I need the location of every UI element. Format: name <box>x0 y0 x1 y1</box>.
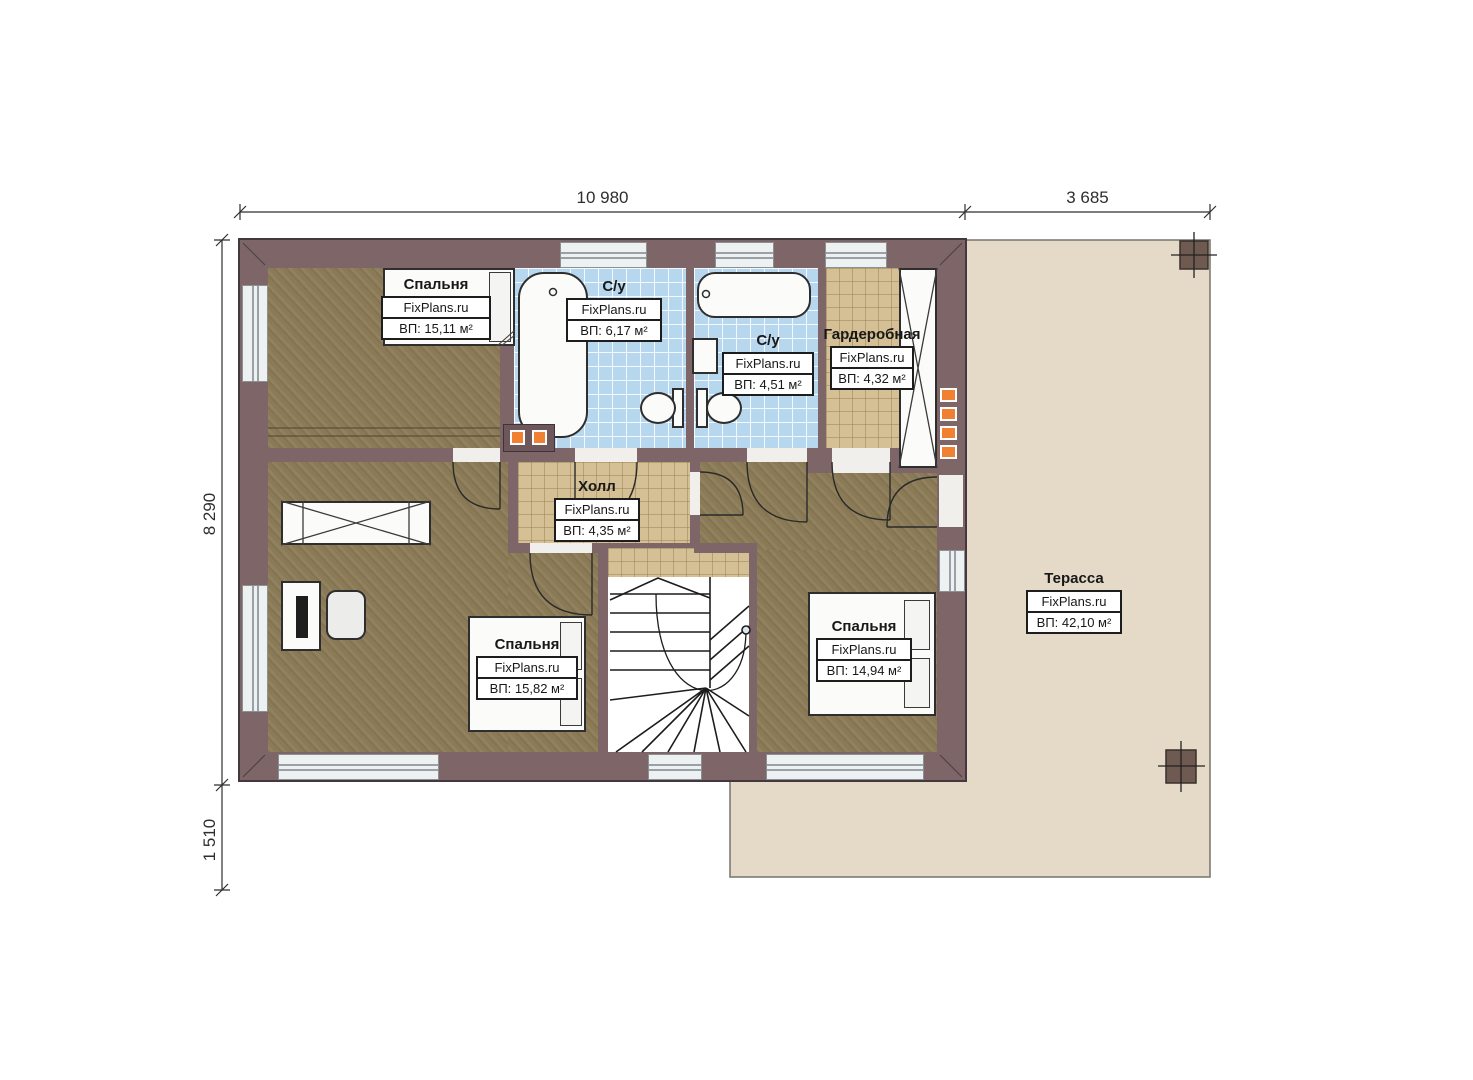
room-area: ВП: 15,82 м² <box>478 677 576 698</box>
dimension-terrace-side: 1 510 <box>200 800 220 880</box>
dimension-terrace-width: 3 685 <box>965 188 1210 208</box>
window <box>242 585 268 712</box>
stairwell <box>608 577 749 752</box>
door-opening <box>832 448 890 473</box>
room-name: Холл <box>578 478 616 495</box>
closet <box>281 501 431 545</box>
window <box>242 285 268 382</box>
chair <box>326 590 366 640</box>
brand-label: FixPlans.ru <box>832 348 912 367</box>
room-name: Спальня <box>495 636 560 653</box>
brand-label: FixPlans.ru <box>383 298 489 317</box>
wall <box>508 462 518 553</box>
window <box>766 754 924 780</box>
room-name: Спальня <box>832 618 897 635</box>
window <box>278 754 439 780</box>
corridor-floor <box>700 462 937 550</box>
room-area: ВП: 4,32 м² <box>832 367 912 388</box>
door-opening <box>690 472 700 515</box>
wall <box>694 543 749 553</box>
door-opening <box>575 448 637 462</box>
room-name: С/у <box>602 278 625 295</box>
room-label-bedroom-bottom-right: Спальня FixPlans.ru ВП: 14,94 м² <box>818 618 910 682</box>
floor-plan: 10 980 3 685 8 290 1 510 Спальня FixPlan… <box>0 0 1473 1080</box>
window <box>648 754 702 780</box>
terrace-post <box>1180 241 1208 269</box>
brand-label: FixPlans.ru <box>478 658 576 677</box>
terrace-door-opening <box>939 475 963 527</box>
wall <box>508 543 530 553</box>
brand-label: FixPlans.ru <box>818 640 910 659</box>
wall <box>690 462 700 472</box>
room-name: Терасса <box>1044 570 1103 587</box>
orange-marker <box>940 388 957 402</box>
room-area: ВП: 42,10 м² <box>1028 611 1120 632</box>
sink <box>692 338 718 374</box>
room-name: С/у <box>756 332 779 349</box>
pillow <box>489 272 511 342</box>
orange-marker <box>510 430 525 445</box>
bathtub <box>697 272 811 318</box>
room-area: ВП: 14,94 м² <box>818 659 910 680</box>
terrace-post <box>1166 750 1196 783</box>
wall <box>749 543 757 752</box>
room-name: Гардеробная <box>823 326 920 343</box>
room-area: ВП: 15,11 м² <box>383 317 489 338</box>
brand-label: FixPlans.ru <box>724 354 812 373</box>
room-area: ВП: 6,17 м² <box>568 319 660 340</box>
door-opening <box>747 448 807 462</box>
post-cross-marks <box>1158 232 1217 792</box>
wall <box>637 448 747 462</box>
window <box>939 550 965 592</box>
window <box>825 242 887 268</box>
room-label-bathroom-1: С/у FixPlans.ru ВП: 6,17 м² <box>568 278 660 342</box>
room-name: Спальня <box>404 276 469 293</box>
orange-marker <box>940 445 957 459</box>
wall <box>592 543 608 553</box>
orange-marker <box>532 430 547 445</box>
room-area: ВП: 4,35 м² <box>556 519 638 540</box>
room-label-hall: Холл FixPlans.ru ВП: 4,35 м² <box>556 478 638 542</box>
room-area: ВП: 4,51 м² <box>724 373 812 394</box>
dimension-side-height: 8 290 <box>200 474 220 554</box>
room-label-wardrobe: Гардеробная FixPlans.ru ВП: 4,32 м² <box>832 326 912 390</box>
window <box>560 242 647 268</box>
room-label-bedroom-top-left: Спальня FixPlans.ru ВП: 15,11 м² <box>383 276 489 340</box>
toilet <box>706 392 742 424</box>
brand-label: FixPlans.ru <box>556 500 638 519</box>
window <box>715 242 774 268</box>
brand-label: FixPlans.ru <box>1028 592 1120 611</box>
wall <box>268 448 453 462</box>
door-opening <box>530 543 592 553</box>
wall <box>818 268 826 448</box>
orange-marker <box>940 426 957 440</box>
toilet <box>640 392 676 424</box>
wall <box>598 553 608 752</box>
room-label-terrace: Терасса FixPlans.ru ВП: 42,10 м² <box>1028 570 1120 634</box>
room-label-bedroom-bottom-left: Спальня FixPlans.ru ВП: 15,82 м² <box>478 636 576 700</box>
door-opening <box>453 448 500 462</box>
wall <box>807 448 832 473</box>
dimension-top-width: 10 980 <box>240 188 965 208</box>
brand-label: FixPlans.ru <box>568 300 660 319</box>
orange-marker <box>940 407 957 421</box>
room-label-bathroom-2: С/у FixPlans.ru ВП: 4,51 м² <box>724 332 812 396</box>
wall <box>690 515 700 543</box>
monitor <box>296 596 308 638</box>
